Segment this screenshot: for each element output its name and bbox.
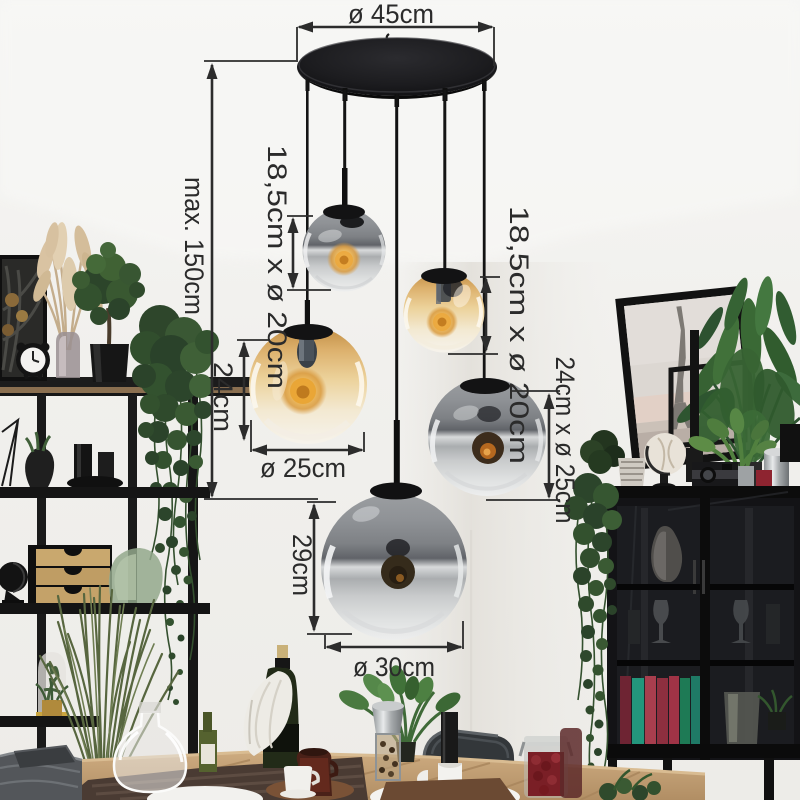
svg-text:max. 150cm: max. 150cm (179, 177, 209, 315)
svg-text:ø 30cm: ø 30cm (353, 652, 435, 682)
svg-text:18,5cm x ø 20cm: 18,5cm x ø 20cm (262, 145, 292, 389)
svg-text:18,5cm x ø 20cm: 18,5cm x ø 20cm (504, 206, 534, 464)
svg-text:24cm x ø 25cm: 24cm x ø 25cm (550, 357, 580, 524)
svg-text:24cm: 24cm (208, 362, 238, 432)
svg-text:ø 45cm: ø 45cm (348, 0, 434, 29)
svg-text:29cm: 29cm (287, 534, 317, 596)
svg-text:ø 25cm: ø 25cm (260, 453, 346, 483)
